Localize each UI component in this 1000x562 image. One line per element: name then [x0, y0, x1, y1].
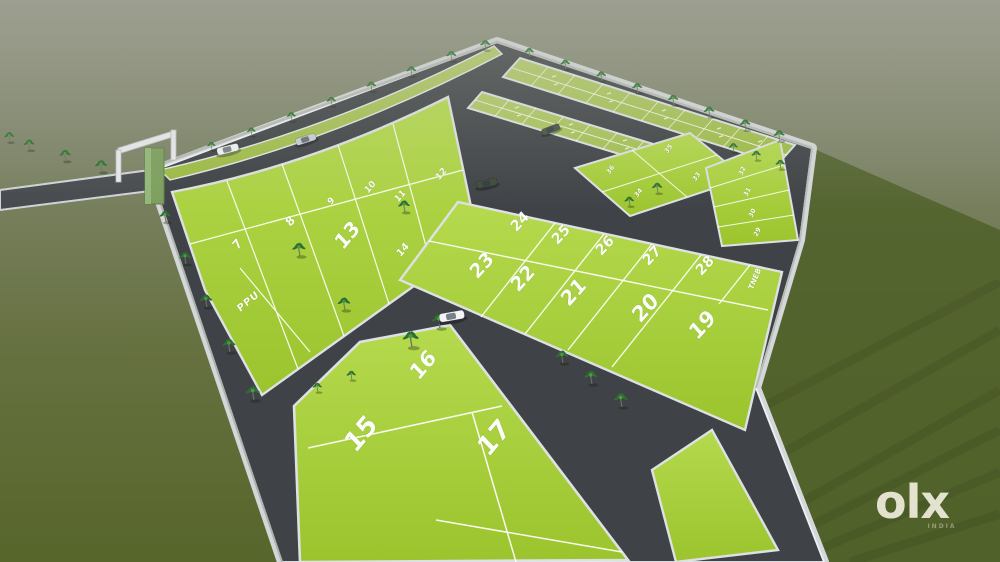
- haze-overlay: [0, 0, 1000, 210]
- site-plan-svg: 36 35 34 33 32 31 30 29 7 8 9 10 11 12 1…: [0, 0, 1000, 562]
- olx-watermark: olx INDIA: [875, 475, 957, 530]
- olx-country-label: INDIA: [927, 523, 956, 530]
- olx-logo: olx: [875, 475, 949, 529]
- aerial-plot-layout-render: 36 35 34 33 32 31 30 29 7 8 9 10 11 12 1…: [0, 0, 1000, 562]
